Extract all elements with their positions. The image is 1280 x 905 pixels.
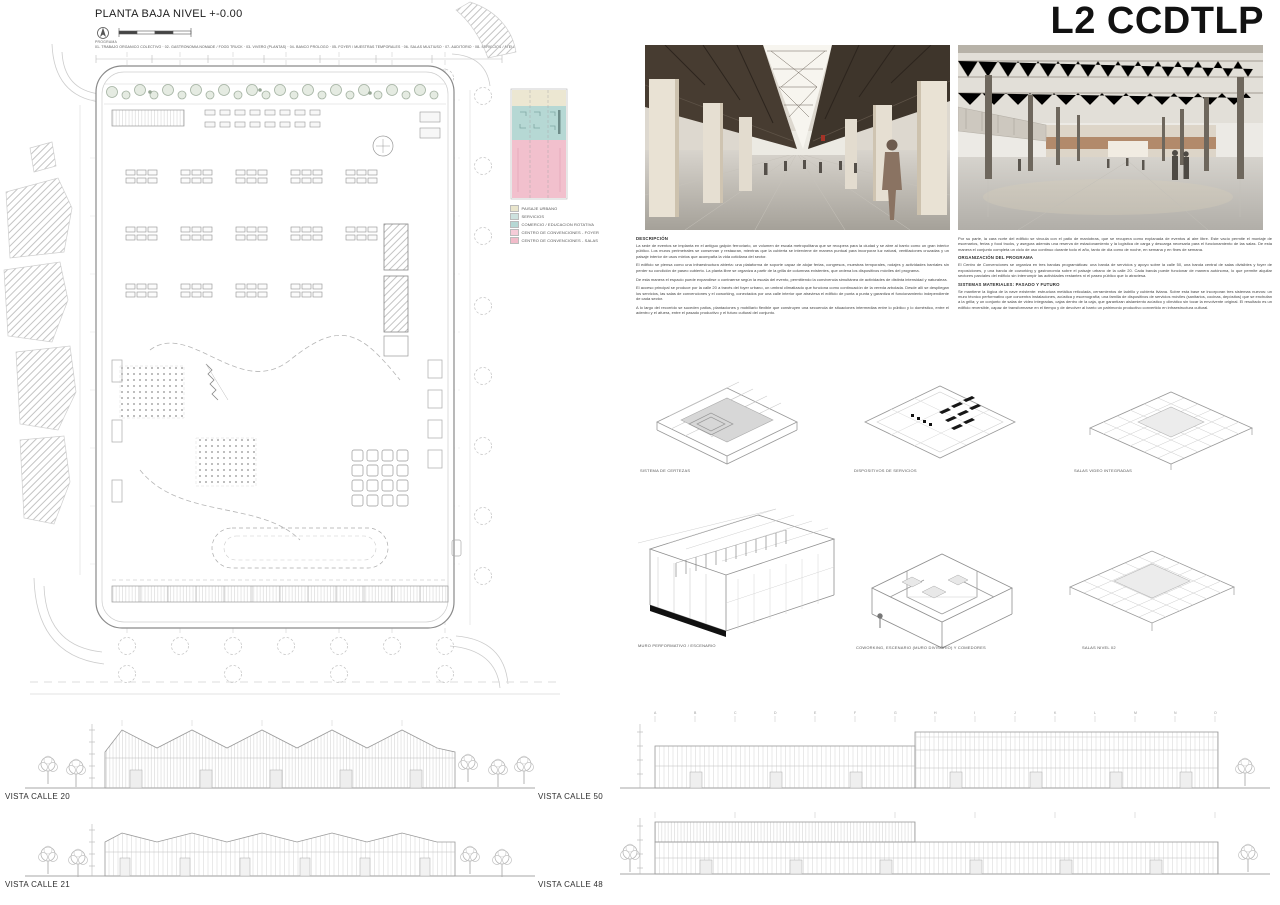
scale-figure xyxy=(878,614,882,628)
svg-text:M: M xyxy=(1134,711,1137,715)
svg-text:A: A xyxy=(654,711,657,715)
legend-label: SERVICIOS xyxy=(522,214,545,219)
axon-dispositivos-servicios xyxy=(855,360,1020,466)
legend-swatch-paisaje xyxy=(510,205,519,212)
legend-item: PAISAJE URBANO xyxy=(510,205,630,212)
axon-muro-performativo xyxy=(638,487,838,647)
legend-item: CENTRO DE CONVENCIONES - SALAS xyxy=(510,237,630,244)
axon-sistema-certezas xyxy=(645,362,805,466)
legend-swatch-salas xyxy=(510,237,519,244)
svg-text:N: N xyxy=(1174,711,1177,715)
legend-item: CENTRO DE CONVENCIONES - FOYER xyxy=(510,229,630,236)
axon-coworking-comedores xyxy=(862,520,1022,652)
elevation-calle-20 xyxy=(0,712,540,790)
legend-swatch-foyer xyxy=(510,229,519,236)
legend-label: PAISAJE URBANO xyxy=(522,206,558,211)
svg-text:H: H xyxy=(934,711,937,715)
legend-swatch-comercio xyxy=(510,221,519,228)
elevation-calle-21 xyxy=(0,812,540,880)
elevation-calle-48 xyxy=(600,808,1280,880)
axon-salas-nivel xyxy=(1056,527,1238,631)
legend-item: SERVICIOS xyxy=(510,213,630,220)
axon-label-1: SISTEMA DE CERTEZAS xyxy=(640,468,690,473)
memoria-paragraph: La sede de eventos se implanta en el ant… xyxy=(636,243,949,259)
svg-text:B: B xyxy=(694,711,697,715)
legend-label: CENTRO DE CONVENCIONES - SALAS xyxy=(522,238,599,243)
board-title: L2 CCDTLP xyxy=(1051,0,1265,43)
render-photo-interior-light xyxy=(958,45,1263,230)
legend-label: COMERCIO / EDUCACION ROTATIVA xyxy=(522,222,594,227)
presentation-board: PLANTA BAJA NIVEL +-0.00 PROGRAMA 01- TR… xyxy=(0,0,1280,905)
svg-text:I: I xyxy=(974,711,975,715)
svg-text:C: C xyxy=(734,711,737,715)
legend-rows: PAISAJE URBANO SERVICIOS COMERCIO / EDUC… xyxy=(510,205,630,244)
memoria-paragraph: Se mantiene la lógica de la nave existen… xyxy=(958,289,1272,310)
zoning-minimap xyxy=(510,88,568,200)
memoria-paragraph: El edificio se piensa como una infraestr… xyxy=(636,262,949,273)
memoria-paragraph: El acceso principal se produce por la ca… xyxy=(636,285,949,301)
memoria-column-1: DESCRIPCIÓN La sede de eventos se implan… xyxy=(636,236,949,319)
zoning-legend: PAISAJE URBANO SERVICIOS COMERCIO / EDUC… xyxy=(510,88,630,245)
memoria-paragraph: A lo largo del recorrido se suceden pati… xyxy=(636,305,949,316)
memoria-paragraph: El Centro de Convenciones se organiza en… xyxy=(958,262,1272,278)
memoria-heading: DESCRIPCIÓN xyxy=(636,236,949,242)
legend-label: CENTRO DE CONVENCIONES - FOYER xyxy=(522,230,599,235)
svg-text:O: O xyxy=(1214,711,1217,715)
axon-label-2: DISPOSITIVOS DE SERVICIOS xyxy=(854,468,917,473)
elevation-label-calle-21: VISTA CALLE 21 xyxy=(5,880,70,889)
memoria-paragraph: De esta manera el espacio puede expandir… xyxy=(636,277,949,282)
elevation-label-calle-48: VISTA CALLE 48 xyxy=(538,880,603,889)
memoria-column-2: Por su parte, la cara norte del edificio… xyxy=(958,236,1272,314)
elevation-calle-50: ABCD EFGH IJKL MNO xyxy=(600,710,1280,792)
axon-label-6: SALAS NIVEL 02 xyxy=(1082,645,1116,650)
render-photo-interior-dark xyxy=(645,45,950,230)
axon-label-3: SALAS VIDEO INTEGRADAS xyxy=(1074,468,1132,473)
svg-text:D: D xyxy=(774,711,777,715)
legend-swatch-servicios xyxy=(510,213,519,220)
svg-text:G: G xyxy=(894,711,897,715)
legend-item: COMERCIO / EDUCACION ROTATIVA xyxy=(510,221,630,228)
axon-salas-video xyxy=(1078,370,1256,470)
svg-text:L: L xyxy=(1094,711,1096,715)
memoria-paragraph: Por su parte, la cara norte del edificio… xyxy=(958,236,1272,252)
memoria-heading-sistemas: SISTEMAS MATERIALES: PASADO Y FUTURO xyxy=(958,282,1272,288)
svg-text:F: F xyxy=(854,711,856,715)
axon-label-4: MURO PERFORMATIVO / ESCENARIO xyxy=(638,643,716,648)
elevation-label-calle-50: VISTA CALLE 50 xyxy=(538,792,603,801)
svg-text:E: E xyxy=(814,711,817,715)
svg-text:J: J xyxy=(1014,711,1016,715)
elevation-label-calle-20: VISTA CALLE 20 xyxy=(5,792,70,801)
svg-text:K: K xyxy=(1054,711,1057,715)
memoria-heading-programa: ORGANIZACIÓN DEL PROGRAMA xyxy=(958,255,1272,261)
axon-label-5: COWORKING, ESCENARIO (MURO DIVISORIO) Y … xyxy=(856,645,986,650)
